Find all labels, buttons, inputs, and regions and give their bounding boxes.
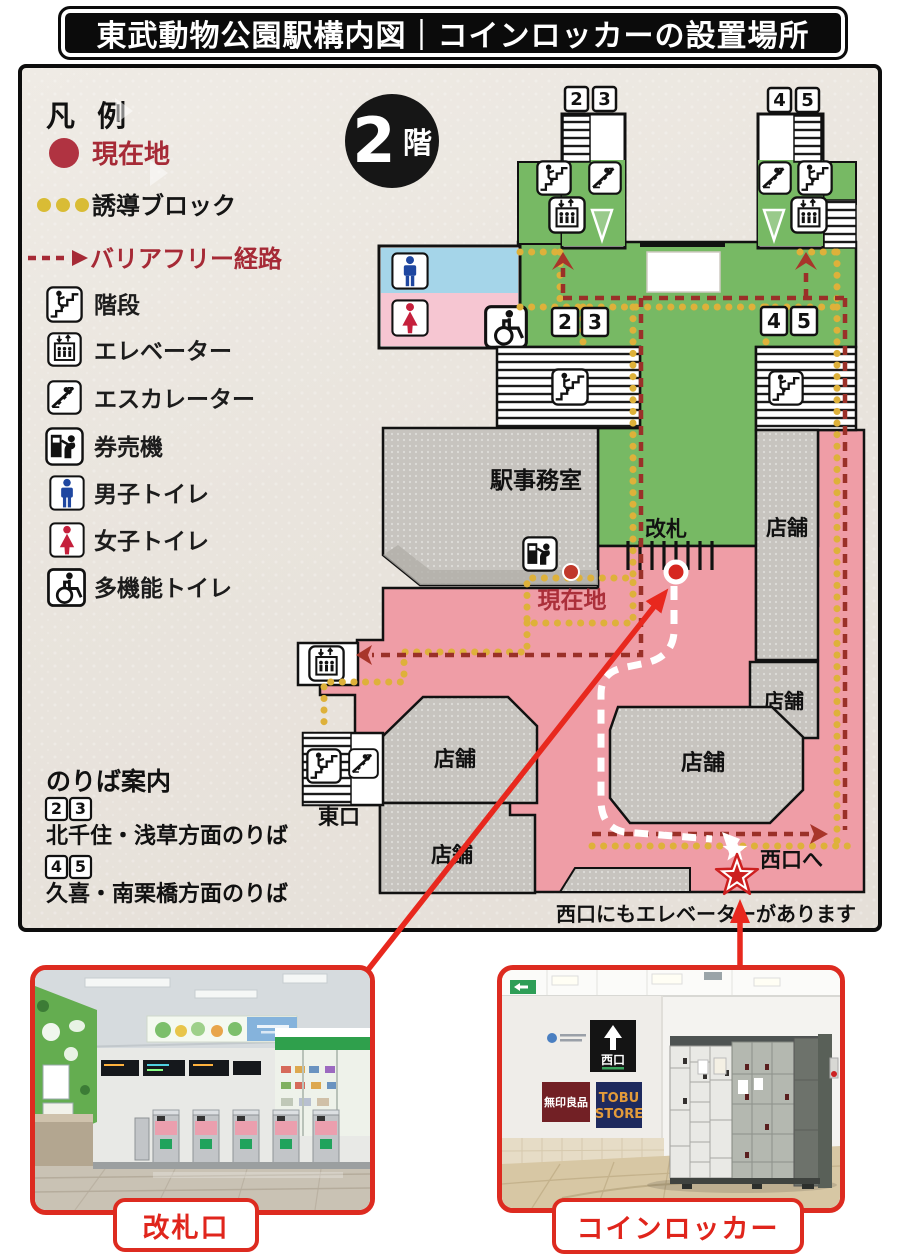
blank-sign (647, 252, 720, 292)
platform-sign-2: 2 (570, 89, 583, 110)
escalator-icon (759, 162, 790, 193)
stairs-icon (47, 287, 81, 321)
elevator-icon (48, 333, 80, 365)
guide-sign-5: 5 (75, 857, 86, 876)
gate-marker-circle (666, 562, 686, 582)
gate-photo[interactable] (30, 965, 375, 1215)
stairs-icon (552, 369, 587, 404)
guide-entry-1: 北千住・浅草方面のりば (46, 823, 288, 849)
floor-number: 2 (352, 104, 395, 177)
elevator-icon (549, 197, 584, 232)
muji-sign: 無印良品 (542, 1082, 590, 1122)
escalator-icon (589, 162, 620, 193)
west-exit-label: 西口へ (760, 848, 823, 872)
notice-board (43, 1065, 69, 1099)
west-elevator-note: 西口にもエレベーターがあります (556, 902, 856, 926)
legend-current-location: 現在地 (92, 140, 170, 170)
platform-sign-2: 2 (558, 310, 572, 334)
guide-sign-3: 3 (75, 799, 86, 818)
stairs-icon (307, 749, 340, 782)
elevator-icon (791, 197, 826, 232)
guide-sign-2: 2 (51, 799, 62, 818)
shop-label: 店舗 (434, 747, 476, 771)
shop-label: 店舗 (766, 516, 808, 540)
platform-sign-4: 4 (773, 90, 786, 111)
east-exit-label: 東口 (318, 805, 360, 829)
guide-entry-2: 久喜・南栗橋方面のりば (46, 881, 288, 907)
station-map-svg: 駅事務室 店舗 店舗 店舗 店舗 店舗 (22, 68, 878, 928)
legend-mens-toilet: 男子トイレ (94, 482, 209, 508)
platform-sign-3: 3 (598, 89, 611, 110)
stairs-icon (537, 161, 570, 194)
wall-button-panel (830, 1058, 838, 1078)
platform-guide-heading: のりば案内 (46, 767, 171, 796)
mens-toilet-icon (50, 476, 83, 509)
ticket-machine-icon (523, 537, 556, 570)
legend-womens-toilet: 女子トイレ (94, 528, 209, 555)
legend-escalator: エスカレーター (94, 387, 255, 413)
tobu-store-sign: TOBU STORE (595, 1082, 643, 1128)
locker-photo-caption: コインロッカー (552, 1198, 804, 1254)
gate-photo-caption: 改札口 (113, 1198, 259, 1252)
current-location-dot (563, 564, 579, 580)
escalator-icon (48, 381, 80, 413)
platform-sign-5: 5 (797, 309, 811, 333)
current-location-label: 現在地 (538, 587, 607, 614)
ticket-machine-icon (46, 428, 82, 464)
womens-toilet-icon (392, 300, 427, 335)
gate-label: 改札 (645, 517, 687, 541)
shop-label: 店舗 (681, 750, 725, 776)
locker-photo-scene: 西口 無印良品 TOBU STORE (502, 970, 840, 1208)
west-exit-sign-text: 西口 (601, 1053, 625, 1067)
station-office: 駅事務室 (383, 428, 598, 585)
locker-photo[interactable]: 西口 無印良品 TOBU STORE (497, 965, 845, 1213)
legend-multifunction-toilet: 多機能トイレ (94, 575, 232, 602)
legend-barrier-free: バリアフリー経路 (90, 245, 283, 273)
station-office-label: 駅事務室 (490, 467, 582, 494)
legend-stairs: 階段 (94, 292, 140, 319)
locker-caption-text: コインロッカー (577, 1207, 780, 1246)
gate-photo-scene (35, 970, 370, 1210)
departure-displays (101, 1060, 261, 1076)
platform-sign-4: 4 (767, 309, 781, 333)
toilet-block (379, 246, 526, 348)
muji-sign-text: 無印良品 (544, 1095, 588, 1109)
legend-elevator: エレベーター (94, 339, 232, 365)
current-location-legend-dot (49, 138, 79, 168)
guide-sign-4: 4 (51, 857, 62, 876)
tobu-sign-line2: STORE (595, 1107, 643, 1122)
coin-lockers (670, 1034, 832, 1189)
gate-caption-text: 改札口 (143, 1206, 230, 1245)
mens-toilet-icon (392, 253, 427, 288)
west-exit-sign: 西口 (590, 1020, 636, 1072)
platform-sign-5: 5 (801, 90, 814, 111)
legend-ticket-machine: 券売機 (94, 434, 163, 461)
page-title: 東武動物公園駅構内図｜コインロッカーの設置場所 (97, 11, 810, 55)
accessible-toilet-icon (48, 569, 84, 605)
elevator-icon (309, 646, 343, 680)
left-wall (502, 996, 662, 1158)
shop-label: 店舗 (431, 843, 473, 867)
station-map-panel: 駅事務室 店舗 店舗 店舗 店舗 店舗 (18, 64, 882, 932)
floor-badge: 2 階 (345, 94, 439, 188)
platform-sign-3: 3 (588, 310, 602, 334)
stairs-icon (769, 371, 802, 404)
ceiling (502, 970, 840, 996)
page-title-bar: 東武動物公園駅構内図｜コインロッカーの設置場所 (58, 6, 848, 60)
accessible-toilet-icon (486, 307, 527, 348)
floor-suffix: 階 (403, 126, 432, 160)
tobu-sign-line1: TOBU (599, 1091, 639, 1106)
exit-sign (510, 980, 536, 994)
escalator-icon (349, 749, 378, 778)
stairs-icon (798, 161, 831, 194)
ceiling-banner (147, 1016, 297, 1042)
womens-toilet-icon (50, 523, 83, 556)
legend-guidance-block: 誘導ブロック (92, 192, 236, 220)
